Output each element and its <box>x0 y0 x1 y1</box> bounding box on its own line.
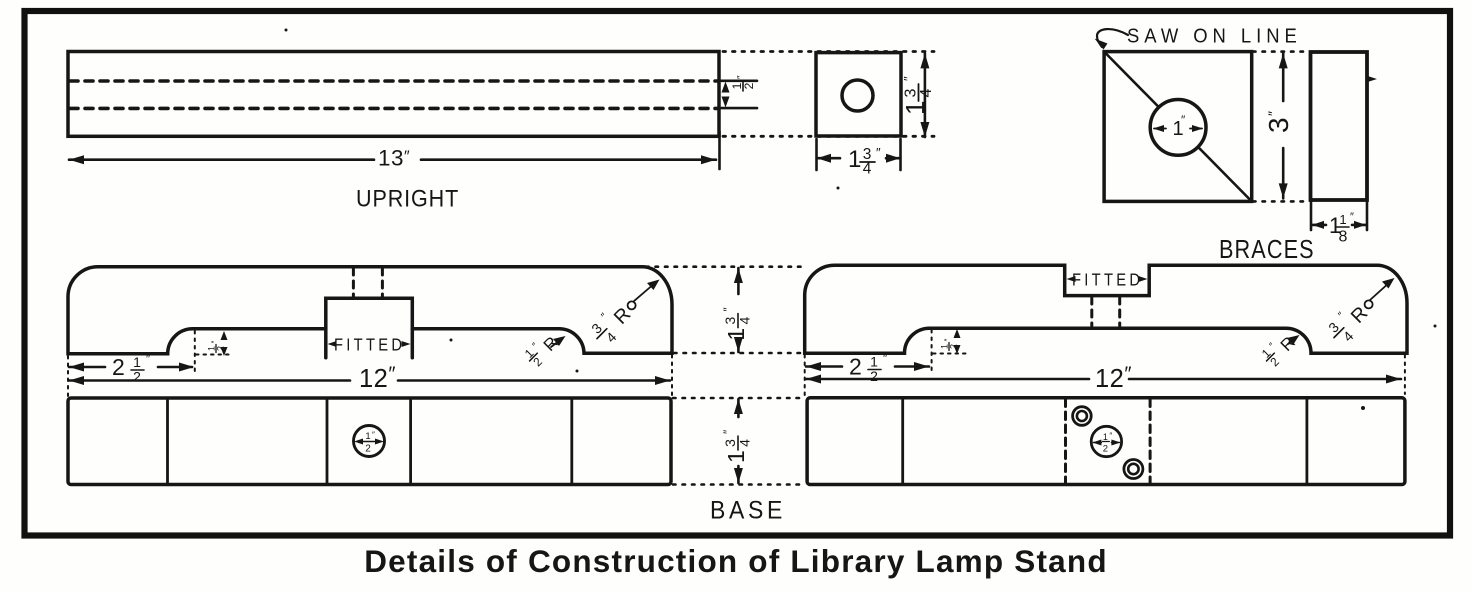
svg-text:12″: 12″ <box>359 364 396 394</box>
svg-text:R: R <box>1347 302 1373 328</box>
svg-text:3: 3 <box>903 88 920 97</box>
svg-text:2: 2 <box>849 354 862 380</box>
svg-text:BASE: BASE <box>710 497 786 525</box>
svg-text:2: 2 <box>530 354 545 369</box>
svg-text:12″: 12″ <box>1095 364 1132 394</box>
svg-text:″: ″ <box>211 341 220 344</box>
svg-text:″: ″ <box>944 339 953 342</box>
svg-text:FITTED: FITTED <box>1072 270 1143 290</box>
svg-text:″: ″ <box>1336 310 1347 321</box>
svg-text:″: ″ <box>1350 211 1354 223</box>
svg-text:1: 1 <box>1339 212 1346 227</box>
svg-text:2: 2 <box>1267 354 1282 369</box>
svg-text:2: 2 <box>365 444 371 455</box>
svg-text:4: 4 <box>1340 328 1357 345</box>
svg-text:4: 4 <box>863 161 872 178</box>
svg-text:4: 4 <box>603 329 620 346</box>
svg-text:1: 1 <box>723 328 749 341</box>
svg-text:BRACES: BRACES <box>1219 236 1315 264</box>
svg-text:″: ″ <box>372 431 375 440</box>
svg-text:″: ″ <box>901 76 916 81</box>
svg-text:FITTED: FITTED <box>334 335 405 355</box>
svg-text:″: ″ <box>736 75 747 79</box>
svg-text:″: ″ <box>721 429 735 434</box>
svg-text:1: 1 <box>848 146 861 173</box>
svg-text:UPRIGHT: UPRIGHT <box>356 184 459 212</box>
svg-text:Details of Construction of Lib: Details of Construction of Library Lamp … <box>364 543 1108 579</box>
svg-text:4: 4 <box>737 316 753 324</box>
svg-text:8: 8 <box>1339 229 1348 246</box>
svg-text:4: 4 <box>918 88 935 97</box>
svg-text:SAW ON LINE: SAW ON LINE <box>1127 25 1302 48</box>
svg-text:2: 2 <box>949 344 959 349</box>
svg-text:″: ″ <box>721 307 735 312</box>
svg-text:2: 2 <box>742 82 756 89</box>
svg-text:2: 2 <box>216 346 226 351</box>
svg-text:13″: 13″ <box>378 146 410 171</box>
svg-text:1: 1 <box>723 450 749 463</box>
svg-text:1: 1 <box>900 101 930 115</box>
svg-text:1: 1 <box>1103 432 1108 442</box>
svg-text:2: 2 <box>112 354 125 380</box>
svg-text:3: 3 <box>1263 117 1294 133</box>
svg-text:4: 4 <box>737 439 753 447</box>
svg-text:1: 1 <box>365 431 370 442</box>
svg-text:2: 2 <box>133 369 141 385</box>
svg-text:″: ″ <box>876 145 881 160</box>
svg-text:R: R <box>610 303 636 329</box>
svg-text:2: 2 <box>1103 444 1108 455</box>
svg-text:″: ″ <box>599 311 610 322</box>
svg-text:2: 2 <box>870 368 878 384</box>
svg-text:″: ″ <box>1265 111 1281 116</box>
svg-text:″: ″ <box>1109 432 1112 441</box>
